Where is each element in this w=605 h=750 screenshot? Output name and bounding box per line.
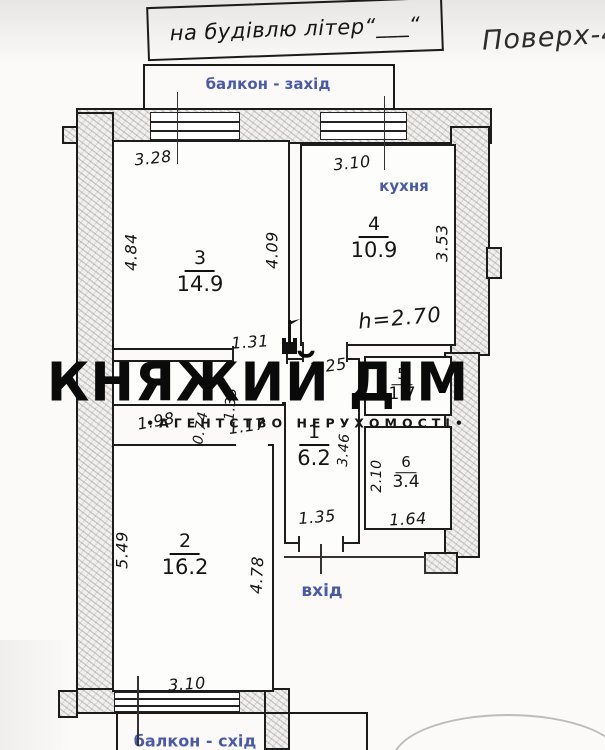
wall-right-niche xyxy=(486,247,502,279)
dim-r3-left: 4.84 xyxy=(122,233,141,271)
floorplan-scan: на будівлю літер“___“ Поверх-4 балкон - … xyxy=(0,0,605,750)
window-room3 xyxy=(150,112,240,140)
balcony-east-label: балкон - схід xyxy=(134,732,257,750)
form-title-box: на будівлю літер“___“ xyxy=(146,0,444,61)
watermark-subtitle: •АГЕНТСТВО НЕРУХОМОСТІ• xyxy=(146,416,468,431)
window-room2 xyxy=(114,692,240,712)
dim-r3-right: 4.09 xyxy=(263,231,282,269)
room-4-label: 4 10.9 xyxy=(351,215,398,261)
room-6-label: 6 3.4 xyxy=(392,454,419,492)
ext-line-balcony-west-right xyxy=(384,96,385,170)
dim-r4-right: 3.53 xyxy=(433,224,452,262)
room-3-label: 3 14.9 xyxy=(177,249,224,295)
dim-r6-bottom: 1.64 xyxy=(389,509,428,530)
balcony-west-label: балкон - захід xyxy=(206,75,331,93)
entrance-wall-step-h xyxy=(424,572,454,574)
wall-top xyxy=(76,108,492,144)
door-room2 xyxy=(236,440,268,448)
kitchen-label: кухня xyxy=(379,177,429,195)
watermark-brand: КНЯЖИЙ ДІМ xyxy=(47,352,469,413)
room-2-label: 2 16.2 xyxy=(162,532,209,578)
dim-r1-bottom: 1.35 xyxy=(297,506,336,528)
window-kitchen xyxy=(320,112,407,140)
stamp-arc xyxy=(392,714,605,750)
dim-r6-left: 2.10 xyxy=(369,459,385,492)
dim-r2-right: 4.78 xyxy=(247,556,268,595)
entrance-door-mark xyxy=(320,544,322,574)
form-title-text: на будівлю літер“___“ xyxy=(169,13,420,46)
floor-label: Поверх-4 xyxy=(481,18,605,56)
dim-r2-left: 5.49 xyxy=(113,531,132,569)
wall-right-notch xyxy=(424,552,458,574)
dim-r2-bottom: 3.10 xyxy=(168,673,207,695)
entrance-label: вхід xyxy=(301,581,342,601)
wall-right-upper xyxy=(450,126,490,356)
dim-r4-top: 3.10 xyxy=(332,152,371,175)
dim-r1-right: 3.46 xyxy=(335,433,353,467)
entrance-outer-wall xyxy=(284,556,426,558)
ext-line-balcony-east xyxy=(137,676,139,746)
dim-r3-top: 3.28 xyxy=(133,147,172,170)
dim-mid-131: 1.31 xyxy=(231,331,270,353)
wall-bottom-left-step xyxy=(58,690,78,718)
agency-logo-icon xyxy=(278,316,302,354)
ext-line-balcony-west-left xyxy=(177,92,178,164)
